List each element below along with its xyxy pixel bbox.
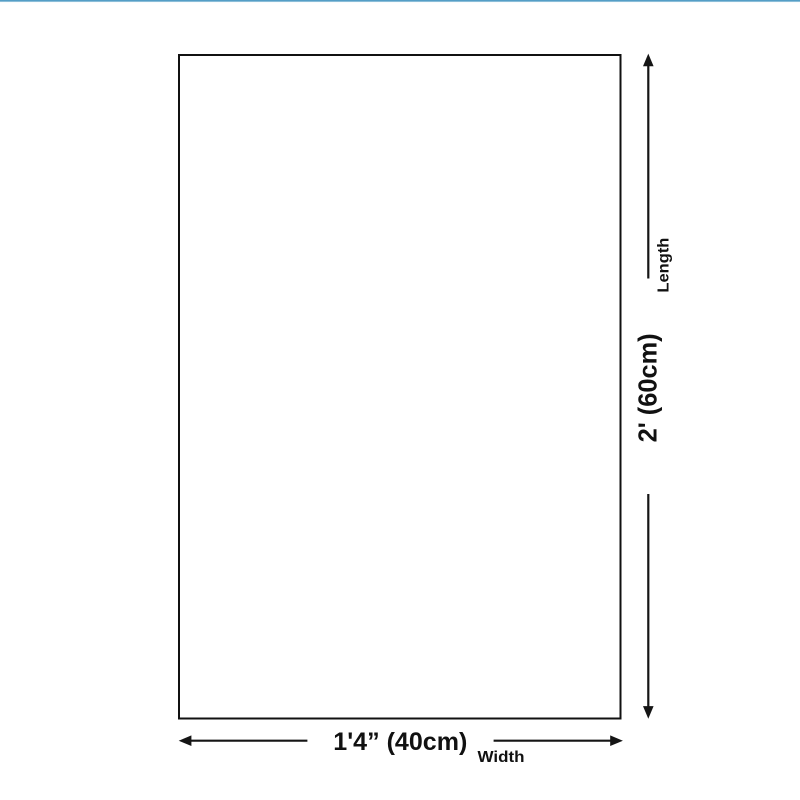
svg-text:2' (60cm): 2' (60cm)	[633, 333, 663, 442]
svg-text:1'4” (40cm): 1'4” (40cm)	[333, 728, 467, 756]
svg-text:Width: Width	[478, 749, 525, 766]
svg-text:Length: Length	[655, 238, 672, 293]
